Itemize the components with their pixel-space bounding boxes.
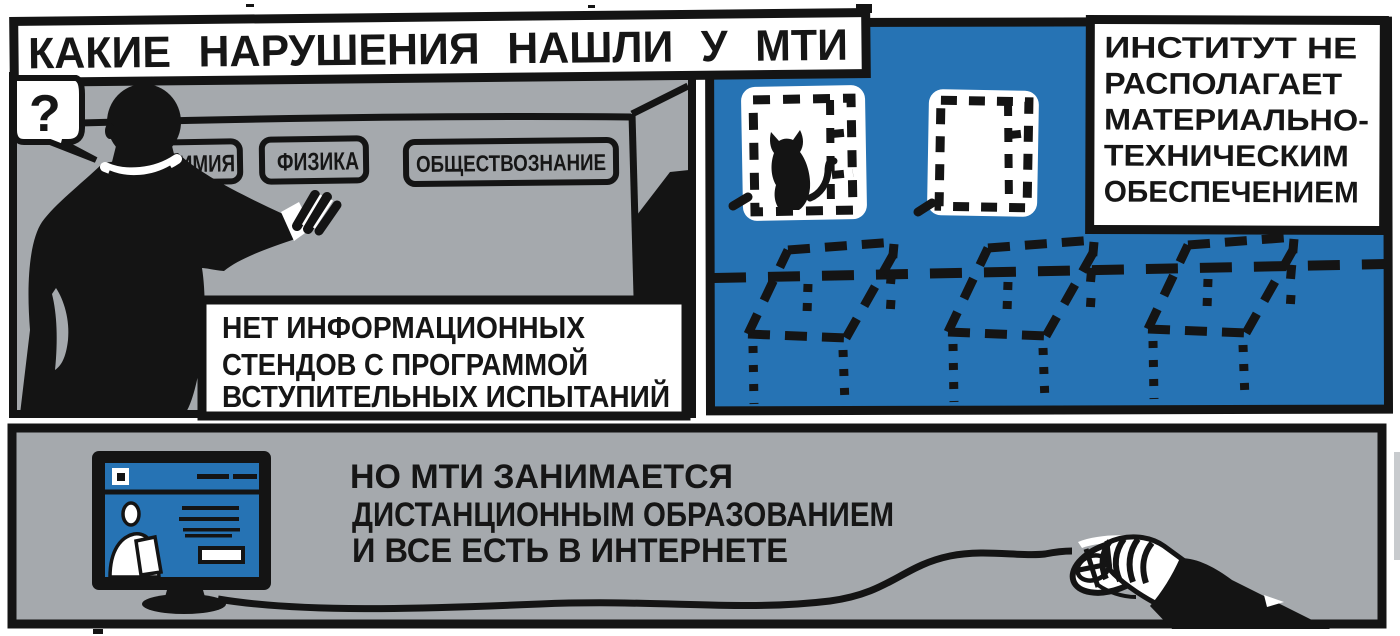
svg-text:КАКИЕ НАРУШЕНИЯ НАШЛИ У МТИ: КАКИЕ НАРУШЕНИЯ НАШЛИ У МТИ	[28, 21, 848, 79]
svg-text:МАТЕРИАЛЬНО-: МАТЕРИАЛЬНО-	[1104, 104, 1369, 138]
svg-text:ОБЕСПЕЧЕНИЕМ: ОБЕСПЕЧЕНИЕМ	[1104, 176, 1359, 210]
svg-text:РАСПОЛАГАЕТ: РАСПОЛАГАЕТ	[1104, 68, 1342, 102]
svg-text:ВСТУПИТЕЛЬНЫХ ИСПЫТАНИЙ: ВСТУПИТЕЛЬНЫХ ИСПЫТАНИЙ	[222, 378, 670, 414]
svg-text:ФИЗИКА: ФИЗИКА	[277, 147, 359, 176]
svg-text:И ВСЕ ЕСТЬ В ИНТЕРНЕТЕ: И ВСЕ ЕСТЬ В ИНТЕРНЕТЕ	[352, 532, 788, 570]
svg-text:ТЕХНИЧЕСКИМ: ТЕХНИЧЕСКИМ	[1104, 140, 1349, 174]
svg-text:ИНСТИТУТ НЕ: ИНСТИТУТ НЕ	[1104, 32, 1357, 66]
svg-text:ДИСТАНЦИОННЫМ ОБРАЗОВАНИЕМ: ДИСТАНЦИОННЫМ ОБРАЗОВАНИЕМ	[352, 496, 894, 534]
svg-text:?: ?	[29, 85, 61, 143]
svg-text:ОБЩЕСТВОЗНАНИЕ: ОБЩЕСТВОЗНАНИЕ	[416, 149, 606, 177]
svg-text:СТЕНДОВ С ПРОГРАММОЙ: СТЕНДОВ С ПРОГРАММОЙ	[222, 346, 588, 382]
svg-text:НЕТ ИНФОРМАЦИОННЫХ: НЕТ ИНФОРМАЦИОННЫХ	[222, 310, 585, 345]
svg-text:НО МТИ ЗАНИМАЕТСЯ: НО МТИ ЗАНИМАЕТСЯ	[350, 458, 733, 496]
